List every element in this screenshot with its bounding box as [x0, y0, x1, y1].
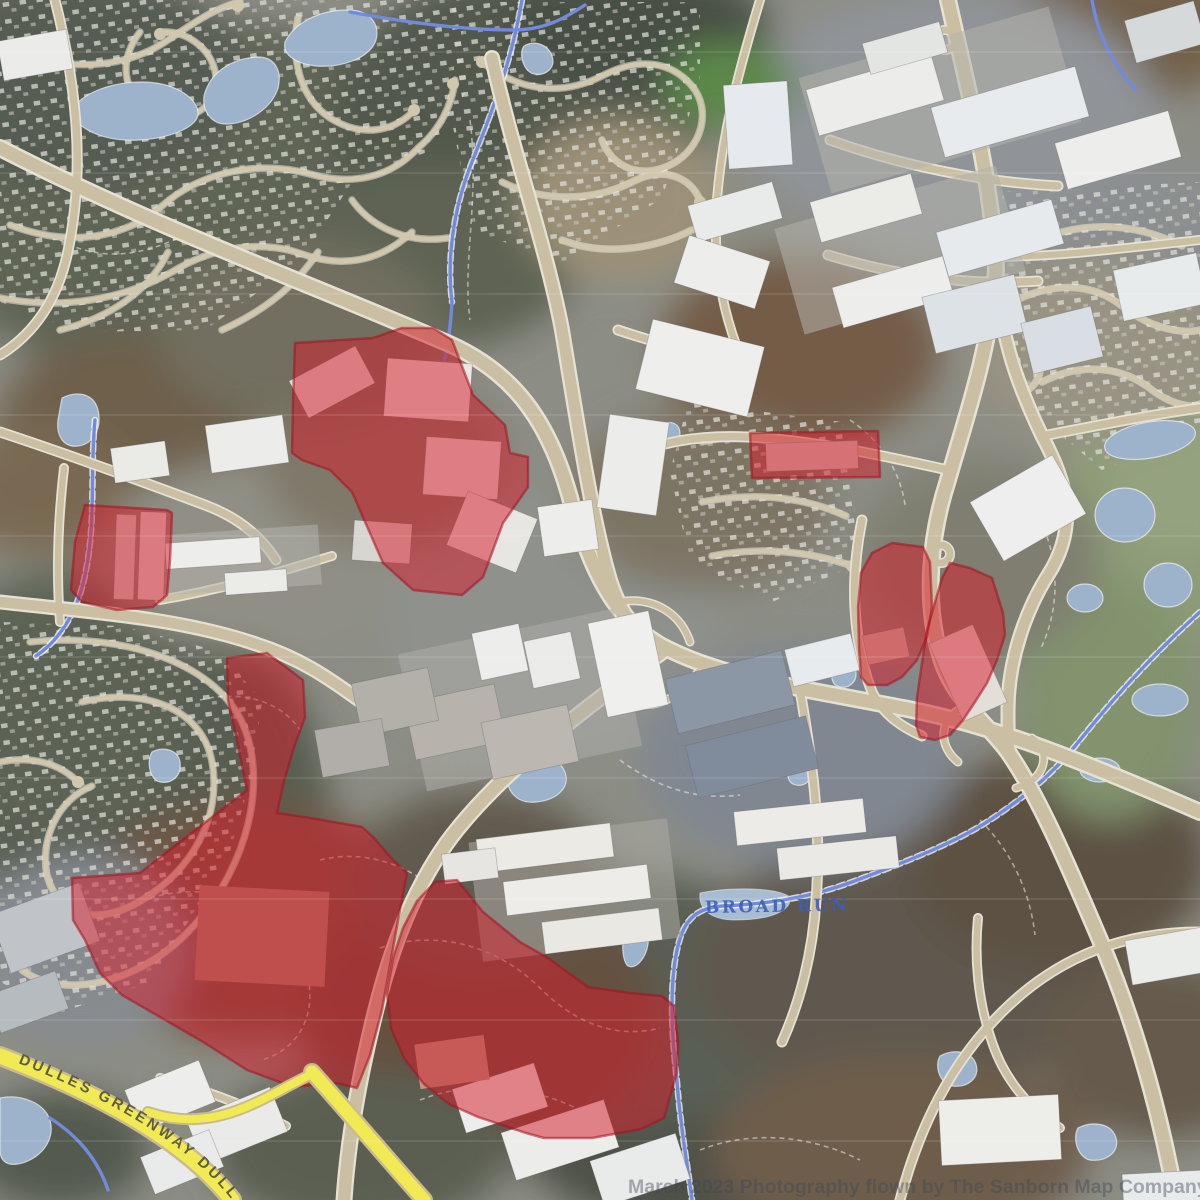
red-zone-zone-2[interactable] — [71, 505, 172, 610]
map-canvas[interactable]: DULLES GREENWAY DULLES GREENWAY BROAD RU… — [0, 0, 1200, 1200]
attribution-watermark: March 2023 Photography flown by The Sanb… — [628, 1176, 1200, 1198]
broad-run-label: BROAD RUN — [705, 895, 849, 918]
map-viewport[interactable]: DULLES GREENWAY DULLES GREENWAY BROAD RU… — [0, 0, 1200, 1200]
red-zone-zone-3[interactable] — [750, 431, 880, 478]
